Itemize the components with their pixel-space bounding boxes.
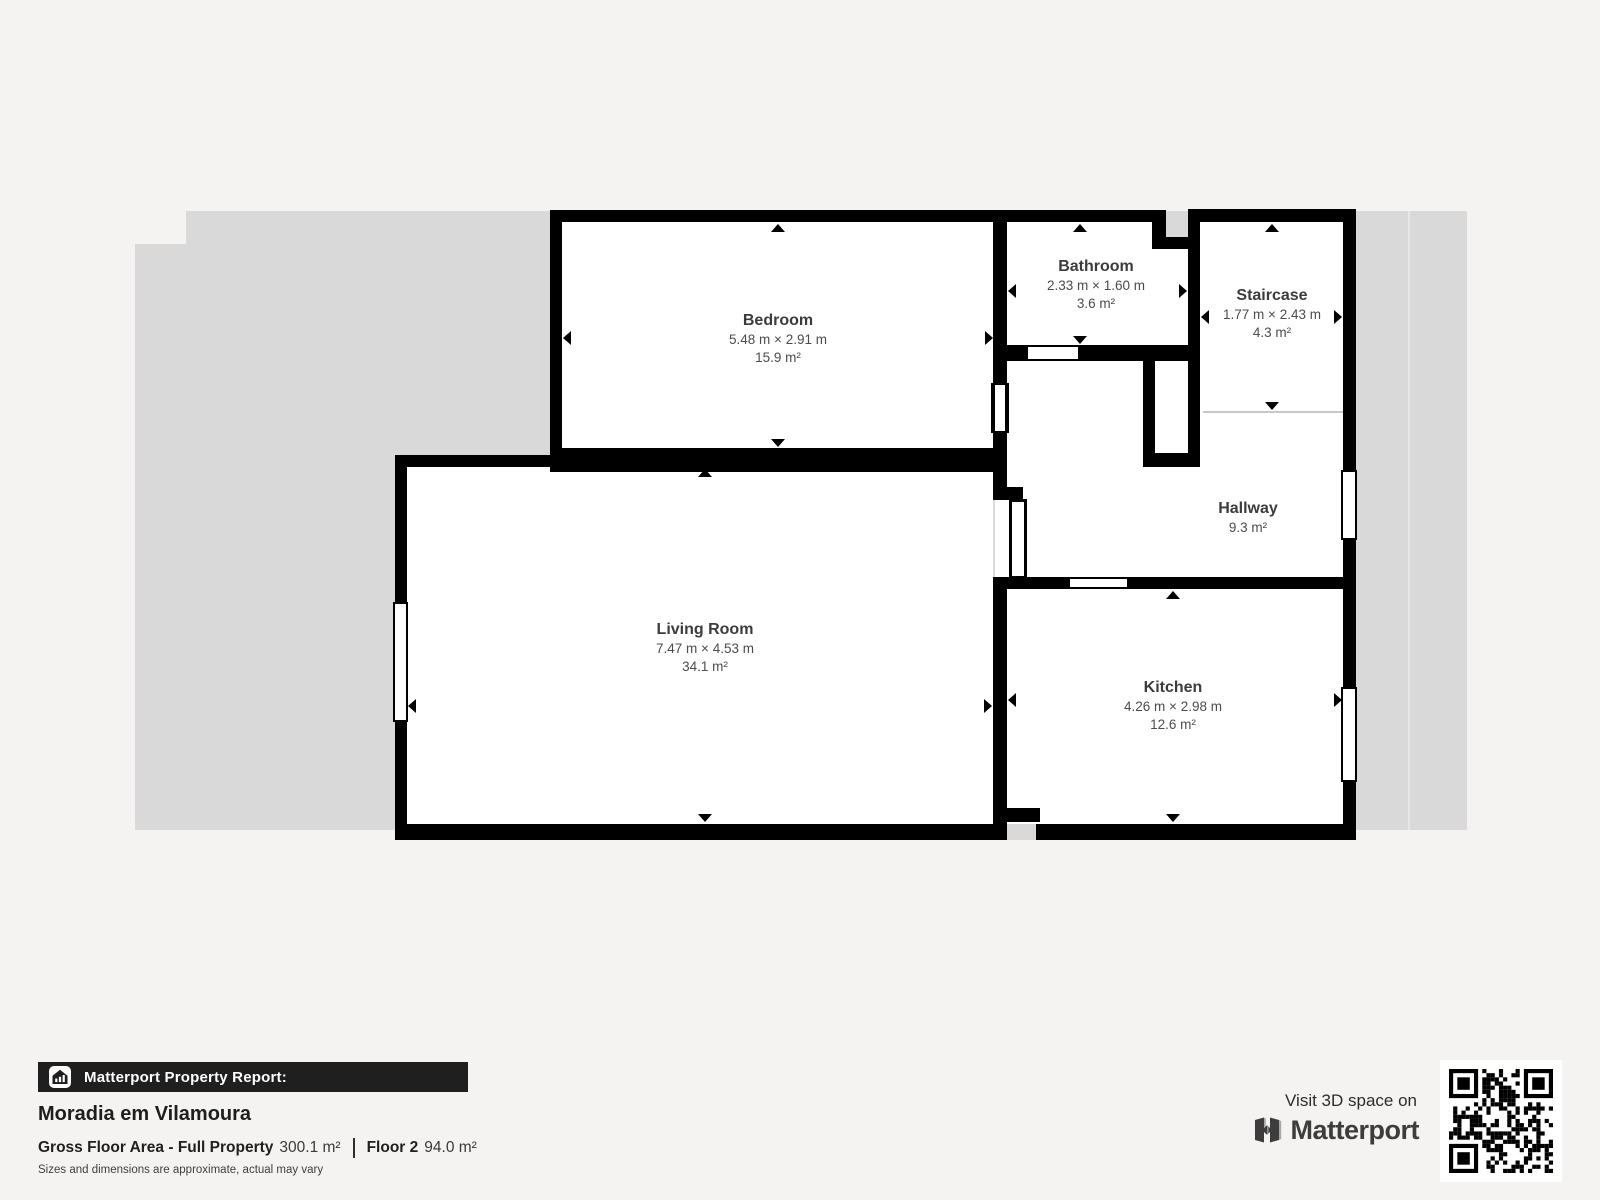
dimension-arrow-right-icon bbox=[1334, 310, 1342, 324]
dimension-arrow-up-icon bbox=[1073, 224, 1087, 232]
room-name: Bedroom bbox=[729, 311, 827, 331]
room-name: Living Room bbox=[656, 620, 754, 640]
room-dimensions: 7.47 m × 4.53 m bbox=[656, 640, 754, 658]
dimension-arrow-down-icon bbox=[1166, 814, 1180, 822]
wall-segment bbox=[1188, 209, 1200, 467]
room-area: 4.3 m² bbox=[1223, 324, 1321, 342]
divider bbox=[353, 1138, 355, 1158]
room-label-bathroom: Bathroom 2.33 m × 1.60 m 3.6 m² bbox=[1047, 257, 1145, 313]
wall-segment bbox=[1188, 209, 1356, 222]
room-dimensions: 2.33 m × 1.60 m bbox=[1047, 277, 1145, 295]
door-opening bbox=[1028, 347, 1078, 359]
dimension-arrow-up-icon bbox=[1265, 224, 1279, 232]
room-dimensions: 5.48 m × 2.91 m bbox=[729, 331, 827, 349]
wall-segment bbox=[993, 577, 1356, 589]
gross-floor-value: 300.1 m² bbox=[279, 1139, 340, 1157]
backdrop-seam bbox=[1408, 211, 1410, 830]
matterport-wordmark: Matterport bbox=[1291, 1115, 1420, 1146]
window bbox=[991, 383, 1009, 433]
wall-segment bbox=[993, 577, 1007, 824]
room-label-hallway: Hallway 9.3 m² bbox=[1218, 499, 1278, 537]
wall-segment bbox=[1143, 357, 1155, 467]
room-dimensions: 4.26 m × 2.98 m bbox=[1124, 698, 1222, 716]
wall-segment bbox=[1152, 237, 1190, 249]
room-area: 12.6 m² bbox=[1124, 716, 1222, 734]
room-area: 15.9 m² bbox=[729, 349, 827, 367]
room-area: 34.1 m² bbox=[656, 658, 754, 676]
room-label-staircase: Staircase 1.77 m × 2.43 m 4.3 m² bbox=[1223, 286, 1321, 342]
dimension-arrow-left-icon bbox=[408, 699, 416, 713]
wall-segment bbox=[993, 345, 1200, 361]
dimension-arrow-down-icon bbox=[1265, 402, 1279, 410]
dimension-arrow-down-icon bbox=[1073, 336, 1087, 344]
room-floor-hallway bbox=[1200, 413, 1343, 577]
staircase-boundary-line bbox=[1203, 411, 1343, 413]
dimension-arrow-right-icon bbox=[984, 699, 992, 713]
room-area: 9.3 m² bbox=[1218, 519, 1278, 537]
qr-code bbox=[1440, 1060, 1562, 1182]
room-dimensions: 1.77 m × 2.43 m bbox=[1223, 306, 1321, 324]
wall-segment bbox=[1036, 824, 1356, 840]
room-name: Hallway bbox=[1218, 499, 1278, 519]
wall-segment bbox=[1143, 453, 1200, 467]
visit-3d-cta: Visit 3D space on Matterport bbox=[1251, 1091, 1420, 1146]
floor-label: Floor 2 bbox=[367, 1139, 419, 1157]
gross-floor-label: Gross Floor Area - Full Property bbox=[38, 1139, 273, 1157]
page: { "plan": { "rooms": { "bedroom": {"name… bbox=[0, 0, 1600, 1200]
wall-segment bbox=[550, 448, 1007, 472]
room-name: Staircase bbox=[1223, 286, 1321, 306]
window bbox=[393, 602, 408, 722]
window bbox=[1341, 687, 1357, 782]
door-opening bbox=[995, 500, 1007, 577]
room-area: 3.6 m² bbox=[1047, 295, 1145, 313]
room-floor-hallway bbox=[1143, 467, 1200, 577]
dimension-arrow-up-icon bbox=[698, 469, 712, 477]
wall-segment bbox=[1005, 808, 1040, 822]
dimension-arrow-left-icon bbox=[563, 331, 571, 345]
dimension-arrow-up-icon bbox=[1166, 591, 1180, 599]
wall-segment bbox=[550, 210, 1162, 222]
matterport-logo-icon bbox=[1251, 1114, 1283, 1146]
floor-area-summary: Gross Floor Area - Full Property 300.1 m… bbox=[38, 1138, 477, 1158]
dimension-arrow-left-icon bbox=[1008, 284, 1016, 298]
dimension-arrow-down-icon bbox=[771, 439, 785, 447]
dimension-arrow-right-icon bbox=[1334, 693, 1342, 707]
floor-value: 94.0 m² bbox=[424, 1139, 477, 1157]
dimension-arrow-right-icon bbox=[1179, 284, 1187, 298]
closet-nook-floor bbox=[1155, 361, 1188, 453]
visit-3d-label: Visit 3D space on bbox=[1251, 1091, 1418, 1111]
brand-row: Matterport bbox=[1251, 1114, 1420, 1146]
dimension-arrow-left-icon bbox=[1008, 693, 1016, 707]
wall-segment bbox=[395, 455, 550, 467]
dimension-arrow-right-icon bbox=[985, 331, 993, 345]
room-name: Bathroom bbox=[1047, 257, 1145, 277]
wall-segment bbox=[395, 824, 1007, 840]
room-label-bedroom: Bedroom 5.48 m × 2.91 m 15.9 m² bbox=[729, 311, 827, 367]
door-opening bbox=[1070, 579, 1127, 587]
report-title-bar: Matterport Property Report: bbox=[38, 1062, 468, 1092]
dimension-arrow-up-icon bbox=[771, 224, 785, 232]
room-label-kitchen: Kitchen 4.26 m × 2.98 m 12.6 m² bbox=[1124, 678, 1222, 734]
property-report-house-icon bbox=[49, 1066, 71, 1088]
dimension-arrow-down-icon bbox=[698, 814, 712, 822]
open-door-leaf bbox=[1009, 499, 1027, 579]
dimension-arrow-left-icon bbox=[1201, 310, 1209, 324]
room-name: Kitchen bbox=[1124, 678, 1222, 698]
disclaimer-text: Sizes and dimensions are approximate, ac… bbox=[38, 1164, 323, 1176]
window bbox=[1341, 470, 1357, 540]
property-name: Moradia em Vilamoura bbox=[38, 1103, 251, 1126]
report-bar-label: Matterport Property Report: bbox=[84, 1069, 287, 1086]
wall-segment bbox=[550, 222, 562, 467]
room-label-living-room: Living Room 7.47 m × 4.53 m 34.1 m² bbox=[656, 620, 754, 676]
